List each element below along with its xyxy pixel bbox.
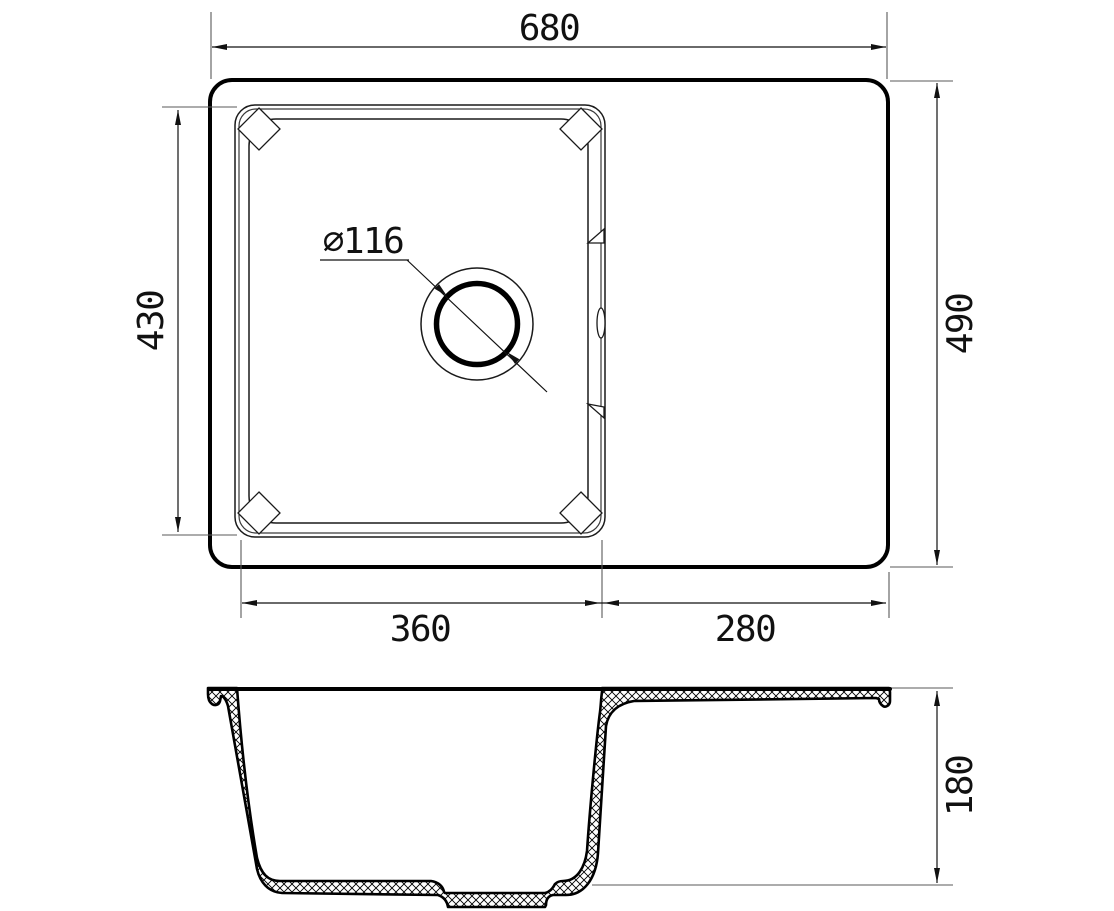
dim-bowl-width: 360 280 (241, 540, 889, 650)
dim-bowl-length-label: 430 (131, 291, 172, 352)
dim-overall-width-label: 680 (519, 8, 580, 49)
bowl-inner-outline (249, 119, 588, 523)
bowl-outer-outline (235, 105, 605, 537)
arrowhead-bottom (934, 550, 940, 565)
section-view: 180 (208, 688, 981, 907)
arrowhead-right (871, 44, 886, 50)
arrowhead-mid-right (585, 600, 600, 606)
dim-drain-diameter-label: ⌀116 (323, 221, 404, 262)
dim-overall-depth-label: 490 (940, 294, 981, 355)
dim-bowl-width-label: 360 (390, 609, 451, 650)
dim-overall-depth: 490 (890, 81, 981, 567)
arrowhead-right (871, 600, 886, 606)
top-view: ⌀116 680 490 430 (131, 8, 981, 650)
arrowhead-bottom (934, 868, 940, 883)
dim-bowl-depth-label: 180 (940, 756, 981, 817)
edge-chevron-lower (588, 404, 604, 418)
dim-bowl-depth: 180 (934, 691, 981, 883)
edge-chevron-upper (588, 229, 604, 243)
arrowhead-left (212, 44, 227, 50)
arrowhead-bottom (175, 517, 181, 532)
overflow-slot (597, 308, 605, 338)
drain-leader-line (407, 260, 547, 392)
section-shell-hatched (208, 688, 890, 907)
arrowhead-top (175, 110, 181, 125)
arrowhead-top (934, 691, 940, 706)
section-shell-bg (208, 688, 890, 907)
sink-technical-drawing: ⌀116 680 490 430 (0, 0, 1114, 911)
arrowhead-top (934, 83, 940, 98)
bowl-rim-outline (239, 109, 601, 533)
sink-outline (210, 80, 888, 567)
dim-drainboard-width-label: 280 (715, 609, 776, 650)
drawing-sheet: ⌀116 680 490 430 (0, 0, 1114, 911)
arrowhead-mid-left (604, 600, 619, 606)
arrowhead-left (242, 600, 257, 606)
dim-overall-width: 680 (211, 8, 887, 79)
dim-bowl-length: 430 (131, 107, 237, 535)
